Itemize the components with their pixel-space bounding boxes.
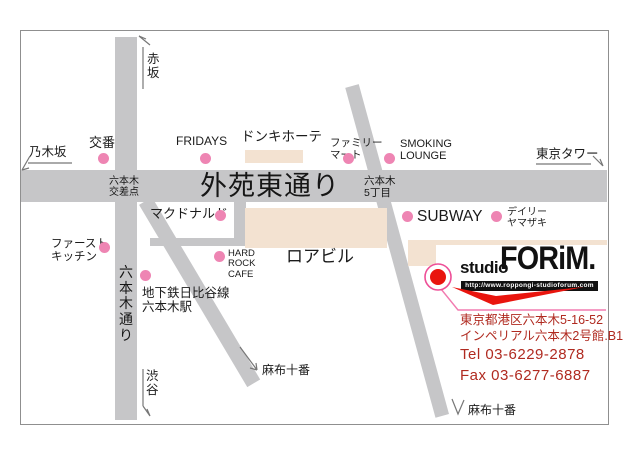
dot-subway — [402, 211, 413, 222]
label-first-kitchen-line2: キッチン — [51, 251, 108, 264]
label-family-mart: ファミリー マート — [330, 138, 383, 161]
direction-nogizaka: 乃木坂 — [29, 146, 67, 160]
direction-azabu-juban-south: 麻布十番 — [262, 364, 310, 377]
label-koban: 交番 — [89, 136, 115, 150]
label-family-mart-line2: マート — [330, 150, 383, 162]
dot-fridays — [200, 153, 211, 164]
label-roppongi-5chome: 六本木 5丁目 — [364, 176, 396, 199]
dot-smoking-lounge — [384, 153, 395, 164]
address-line1: 東京都港区六本木5-16-52 — [460, 312, 623, 328]
label-hard-rock-line3: CAFE — [228, 270, 255, 280]
label-roa-building: ロアビル — [286, 248, 354, 267]
direction-tokyo-tower: 東京タワー — [536, 148, 599, 162]
contact-block: 東京都港区六本木5-16-52 インペリアル六本木2号館.B1 Tel 03-6… — [460, 312, 623, 386]
direction-azabu-juban-southeast: 麻布十番 — [468, 404, 516, 417]
dot-family-mart — [343, 153, 354, 164]
don-quijote-building — [245, 150, 303, 163]
dot-koban — [98, 153, 109, 164]
label-fridays: FRIDAYS — [176, 135, 227, 148]
label-metro-station-line2: 六本木駅 — [142, 300, 230, 314]
label-daily-yamazaki: デイリー ヤマザキ — [507, 207, 547, 229]
label-don-quijote: ドンキホーテ — [241, 130, 322, 145]
direction-shibuya: 渋谷 — [146, 369, 160, 397]
label-daily-yamazaki-line2: ヤマザキ — [507, 218, 547, 229]
label-daily-yamazaki-line1: デイリー — [507, 207, 547, 218]
road-side-street-horizontal — [150, 238, 245, 246]
dot-first-kitchen — [99, 242, 110, 253]
address-line2: インペリアル六本木2号館.B1 — [460, 328, 623, 344]
label-metro-station: 地下鉄日比谷線 六本木駅 — [142, 286, 230, 315]
roppongi-access-map: 六本木 交差点 外苑東通り 六本木 5丁目 六本木通り 赤坂 乃木坂 東京タワー… — [0, 0, 640, 452]
label-metro-station-line1: 地下鉄日比谷線 — [142, 286, 230, 300]
direction-akasaka: 赤坂 — [147, 52, 161, 80]
label-subway: SUBWAY — [417, 208, 482, 225]
label-family-mart-line1: ファミリー — [330, 138, 383, 150]
dot-metro-station — [140, 270, 151, 281]
label-hard-rock-line2: ROCK — [228, 259, 255, 269]
fax-number: Fax 03-6277-6887 — [460, 367, 623, 386]
logo-forum-text: FORiM. — [500, 240, 595, 277]
logo-url: http://www.roppongi-studioforum.com — [461, 281, 598, 291]
label-roppongi-crossing: 六本木 交差点 — [109, 176, 139, 198]
label-roppongi-crossing-line1: 六本木 — [109, 176, 139, 187]
label-roppongi-dori: 六本木通り — [119, 265, 135, 343]
phone-number: Tel 03-6229-2878 — [460, 346, 623, 365]
road-roppongi-dori — [115, 37, 137, 420]
roa-building-block — [245, 208, 387, 248]
label-smoking-lounge-line2: LOUNGE — [400, 150, 452, 162]
label-roppongi-crossing-line2: 交差点 — [109, 187, 139, 198]
label-smoking-lounge: SMOKING LOUNGE — [400, 138, 452, 162]
label-smoking-lounge-line1: SMOKING — [400, 138, 452, 150]
dot-mcdonalds — [215, 210, 226, 221]
label-hard-rock-cafe: HARD ROCK CAFE — [228, 249, 255, 280]
dot-hard-rock-cafe — [214, 251, 225, 262]
dot-daily-yamazaki — [491, 211, 502, 222]
label-gaien-higashi-dori: 外苑東通り — [200, 172, 340, 202]
label-roppongi-5chome-line2: 5丁目 — [364, 188, 396, 200]
label-roppongi-5chome-line1: 六本木 — [364, 176, 396, 188]
